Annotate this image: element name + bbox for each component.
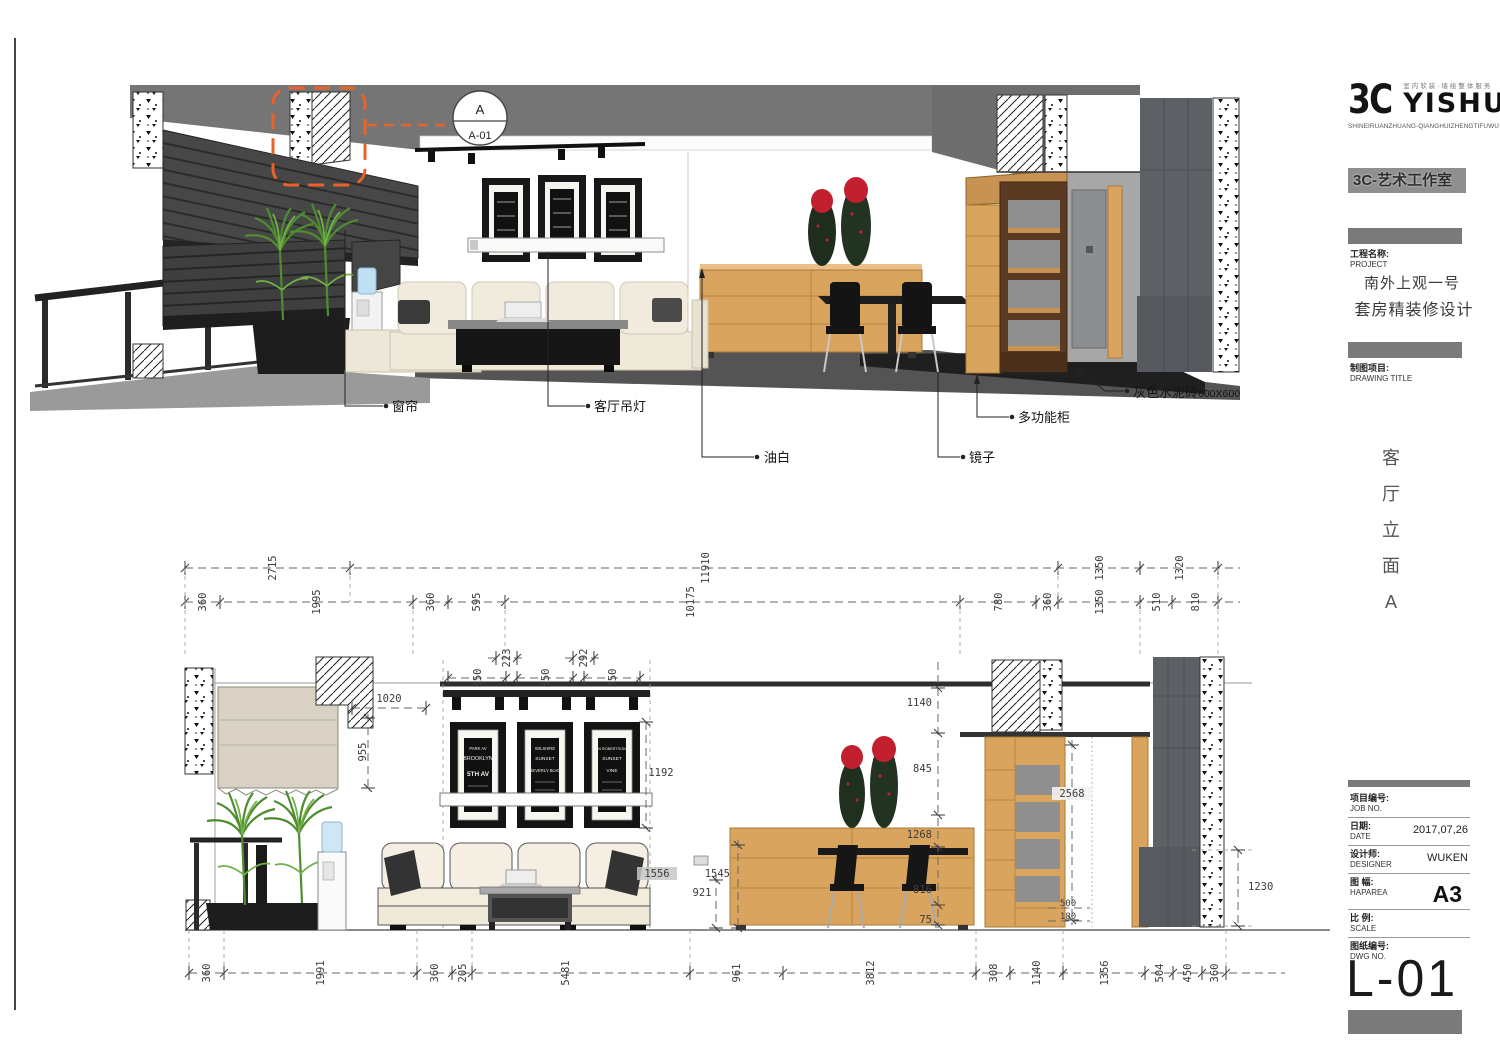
dim-label: 308 — [988, 964, 1000, 983]
poster-word: SUNSET — [602, 756, 622, 762]
row-label-en: JOB NO. — [1350, 804, 1470, 814]
flower-vases — [839, 736, 898, 828]
tile-column — [1153, 657, 1200, 847]
poster-word: WILSHIRE — [535, 746, 555, 751]
planter-box — [252, 318, 350, 374]
flower-vases — [808, 177, 871, 266]
dim-label: 810 — [1190, 593, 1202, 612]
section-letter: A — [476, 102, 485, 117]
info-rows: 项目编号: JOB NO. 日期: DATE 2017,07,26 设计师: D… — [1348, 780, 1470, 965]
rendered-elevation: 窗帘 客厅吊灯 油白 镜子 多功能柜 灰色水泥砖 600X600 — [30, 85, 1240, 465]
right-wall-section — [966, 95, 1239, 373]
dim-label: 360 — [201, 964, 213, 983]
project-label-cn: 工程名称: — [1350, 249, 1389, 260]
dim-label: 1192 — [648, 767, 673, 779]
dim-label: 360 — [425, 593, 437, 612]
drawing-number: L-01 — [1346, 948, 1458, 1008]
dim-label: 1556 — [644, 868, 669, 880]
row-label-cn: 项目编号: — [1350, 793, 1470, 804]
divider-bar — [1348, 1010, 1462, 1034]
project-name-line1: 南外上观一号 — [1348, 272, 1476, 293]
dim-label: 921 — [693, 887, 712, 899]
dim-label: 1991 — [315, 960, 327, 985]
divider-bar — [1348, 780, 1470, 787]
wall-socket — [694, 856, 708, 865]
poster-word: VINE — [606, 768, 617, 774]
dim-label: 816 — [913, 884, 932, 896]
poster-word: PARK AV — [469, 746, 487, 751]
planter-box — [206, 903, 336, 930]
label-pendant-lamp: 客厅吊灯 — [594, 399, 646, 414]
dim-label: 2568 — [1059, 788, 1084, 800]
drawing-title-label: 制图项目: DRAWING TITLE — [1350, 363, 1412, 384]
dim-label: 510 — [1151, 593, 1163, 612]
dim-label: 1020 — [376, 693, 401, 705]
wall-section-hatch — [312, 92, 350, 165]
row-date: 日期: DATE 2017,07,26 — [1348, 818, 1470, 846]
dim-label: 1320 — [1174, 555, 1186, 580]
poster-word: BROOKLYN — [463, 756, 493, 762]
title-char: A — [1385, 592, 1397, 612]
dim-label: 780 — [993, 593, 1005, 612]
dimension-rows: 2715 11910 1350 1320 360 1995 360 595 10… — [181, 552, 1240, 655]
dim-label: 2715 — [267, 555, 279, 580]
dimensioned-elevation: PARK AV BROOKLYN 5TH AV WILSHIRE SUNSET … — [185, 649, 1330, 932]
drawing-label-en: DRAWING TITLE — [1350, 374, 1412, 384]
poster-word: SUNSET — [535, 756, 555, 762]
divider-bar — [1348, 342, 1462, 358]
tile-column — [1140, 98, 1212, 296]
title-char: 立 — [1382, 520, 1400, 540]
poster-word: BEVERLY BLVD — [530, 768, 561, 773]
poster-frames — [468, 175, 664, 262]
dim-label: 1230 — [1248, 881, 1273, 893]
row-value: WUKEN — [1427, 852, 1468, 864]
label-tile-size: 600X600 — [1198, 388, 1240, 400]
dim-label: 1140 — [1031, 960, 1043, 985]
insulation-hatch — [133, 92, 163, 168]
label-oil-white: 油白 — [764, 450, 790, 465]
drawing-canvas: 窗帘 客厅吊灯 油白 镜子 多功能柜 灰色水泥砖 600X600 — [0, 0, 1345, 1060]
dim-label: 1350 — [1094, 589, 1106, 614]
dim-label: 961 — [731, 964, 743, 983]
studio-name-box: 3C-艺术工作室 — [1348, 168, 1466, 193]
dim-label: 845 — [913, 763, 932, 775]
project-label: 工程名称: PROJECT — [1350, 249, 1389, 270]
project-name-line2: 套房精装修设计 — [1348, 296, 1480, 320]
logo-mark: 3C — [1348, 80, 1392, 120]
dim-label: 360 — [429, 964, 441, 983]
wall-shelf — [468, 238, 664, 252]
sheet-size-value: A3 — [1433, 881, 1462, 908]
dim-label: 450 — [1182, 964, 1194, 983]
dim-label: 595 — [471, 593, 483, 612]
dim-label: 360 — [1042, 593, 1054, 612]
divider-bar — [1348, 228, 1462, 244]
dim-label: 504 — [1154, 964, 1166, 983]
dim-label: 1268 — [907, 829, 932, 841]
label-multi-cabinet: 多功能柜 — [1018, 410, 1070, 425]
title-block: 3C 室内软装·墙绘整体服务 YISHU SHINEIRUANZHUANG-QI… — [1346, 0, 1486, 1060]
dim-label: 1140 — [907, 697, 932, 709]
dim-label: 1356 — [1099, 960, 1111, 985]
dim-label: 223 — [501, 649, 513, 668]
row-value: 2017,07,26 — [1413, 824, 1468, 836]
dim-label: 11910 — [700, 552, 712, 584]
poster-word: 5TH AV — [467, 771, 490, 778]
dim-label: 75 — [919, 914, 932, 926]
dim-label: 350 — [607, 669, 619, 688]
dim-label: 292 — [578, 649, 590, 668]
dim-label: 360 — [1209, 964, 1221, 983]
wall-shelf — [440, 793, 652, 806]
dim-label: 1545 — [705, 868, 730, 880]
dim-label: 1350 — [1094, 555, 1106, 580]
dim-label: 205 — [457, 964, 469, 983]
dim-label: 350 — [540, 669, 552, 688]
label-curtain: 窗帘 — [392, 399, 418, 414]
label-tile: 灰色水泥砖 — [1133, 385, 1198, 400]
section-ref: A-01 — [468, 130, 491, 142]
drawing-label-cn: 制图项目: — [1350, 363, 1412, 374]
title-char: 客 — [1382, 448, 1400, 468]
dim-label: 1995 — [311, 589, 323, 614]
dim-label: 955 — [357, 743, 369, 762]
logo-name: YISHU — [1403, 90, 1500, 118]
poster-frames: PARK AV BROOKLYN 5TH AV WILSHIRE SUNSET … — [440, 722, 652, 828]
title-char: 厅 — [1382, 484, 1400, 504]
drawing-title-vertical: 客 厅 立 面 A — [1382, 448, 1400, 612]
dim-label: 350 — [472, 669, 484, 688]
label-mirror: 镜子 — [969, 450, 995, 465]
laptop — [506, 870, 536, 884]
row-designer: 设计师: DESIGNER WUKEN — [1348, 846, 1470, 874]
row-label-en: SCALE — [1350, 924, 1470, 934]
title-char: 面 — [1382, 556, 1400, 576]
dim-label: 10175 — [685, 586, 697, 618]
company-logo: 3C 室内软装·墙绘整体服务 YISHU — [1348, 80, 1484, 120]
row-sheet-size: 图 幅: HAPAREA A3 — [1348, 874, 1470, 910]
mirror-panel — [1072, 190, 1106, 348]
bottom-dimension-row: 360 1991 360 205 5481 961 3812 308 1140 … — [185, 930, 1285, 986]
drawing-sheet: 窗帘 客厅吊灯 油白 镜子 多功能柜 灰色水泥砖 600X600 — [0, 0, 1500, 1060]
dim-label: 360 — [197, 593, 209, 612]
laptop — [505, 302, 541, 318]
water-dispenser — [318, 822, 346, 930]
dim-label: 3812 — [865, 960, 877, 985]
row-label-cn: 比 例: — [1350, 913, 1470, 924]
row-scale: 比 例: SCALE — [1348, 910, 1470, 938]
dim-label: 5481 — [560, 960, 572, 985]
project-label-en: PROJECT — [1350, 260, 1389, 270]
logo-tagline-pinyin: SHINEIRUANZHUANG-QIANGHUIZHENGTIFUWU — [1348, 123, 1498, 130]
poster-word: N ROBERTSON — [598, 747, 626, 751]
row-job-no: 项目编号: JOB NO. — [1348, 790, 1470, 818]
